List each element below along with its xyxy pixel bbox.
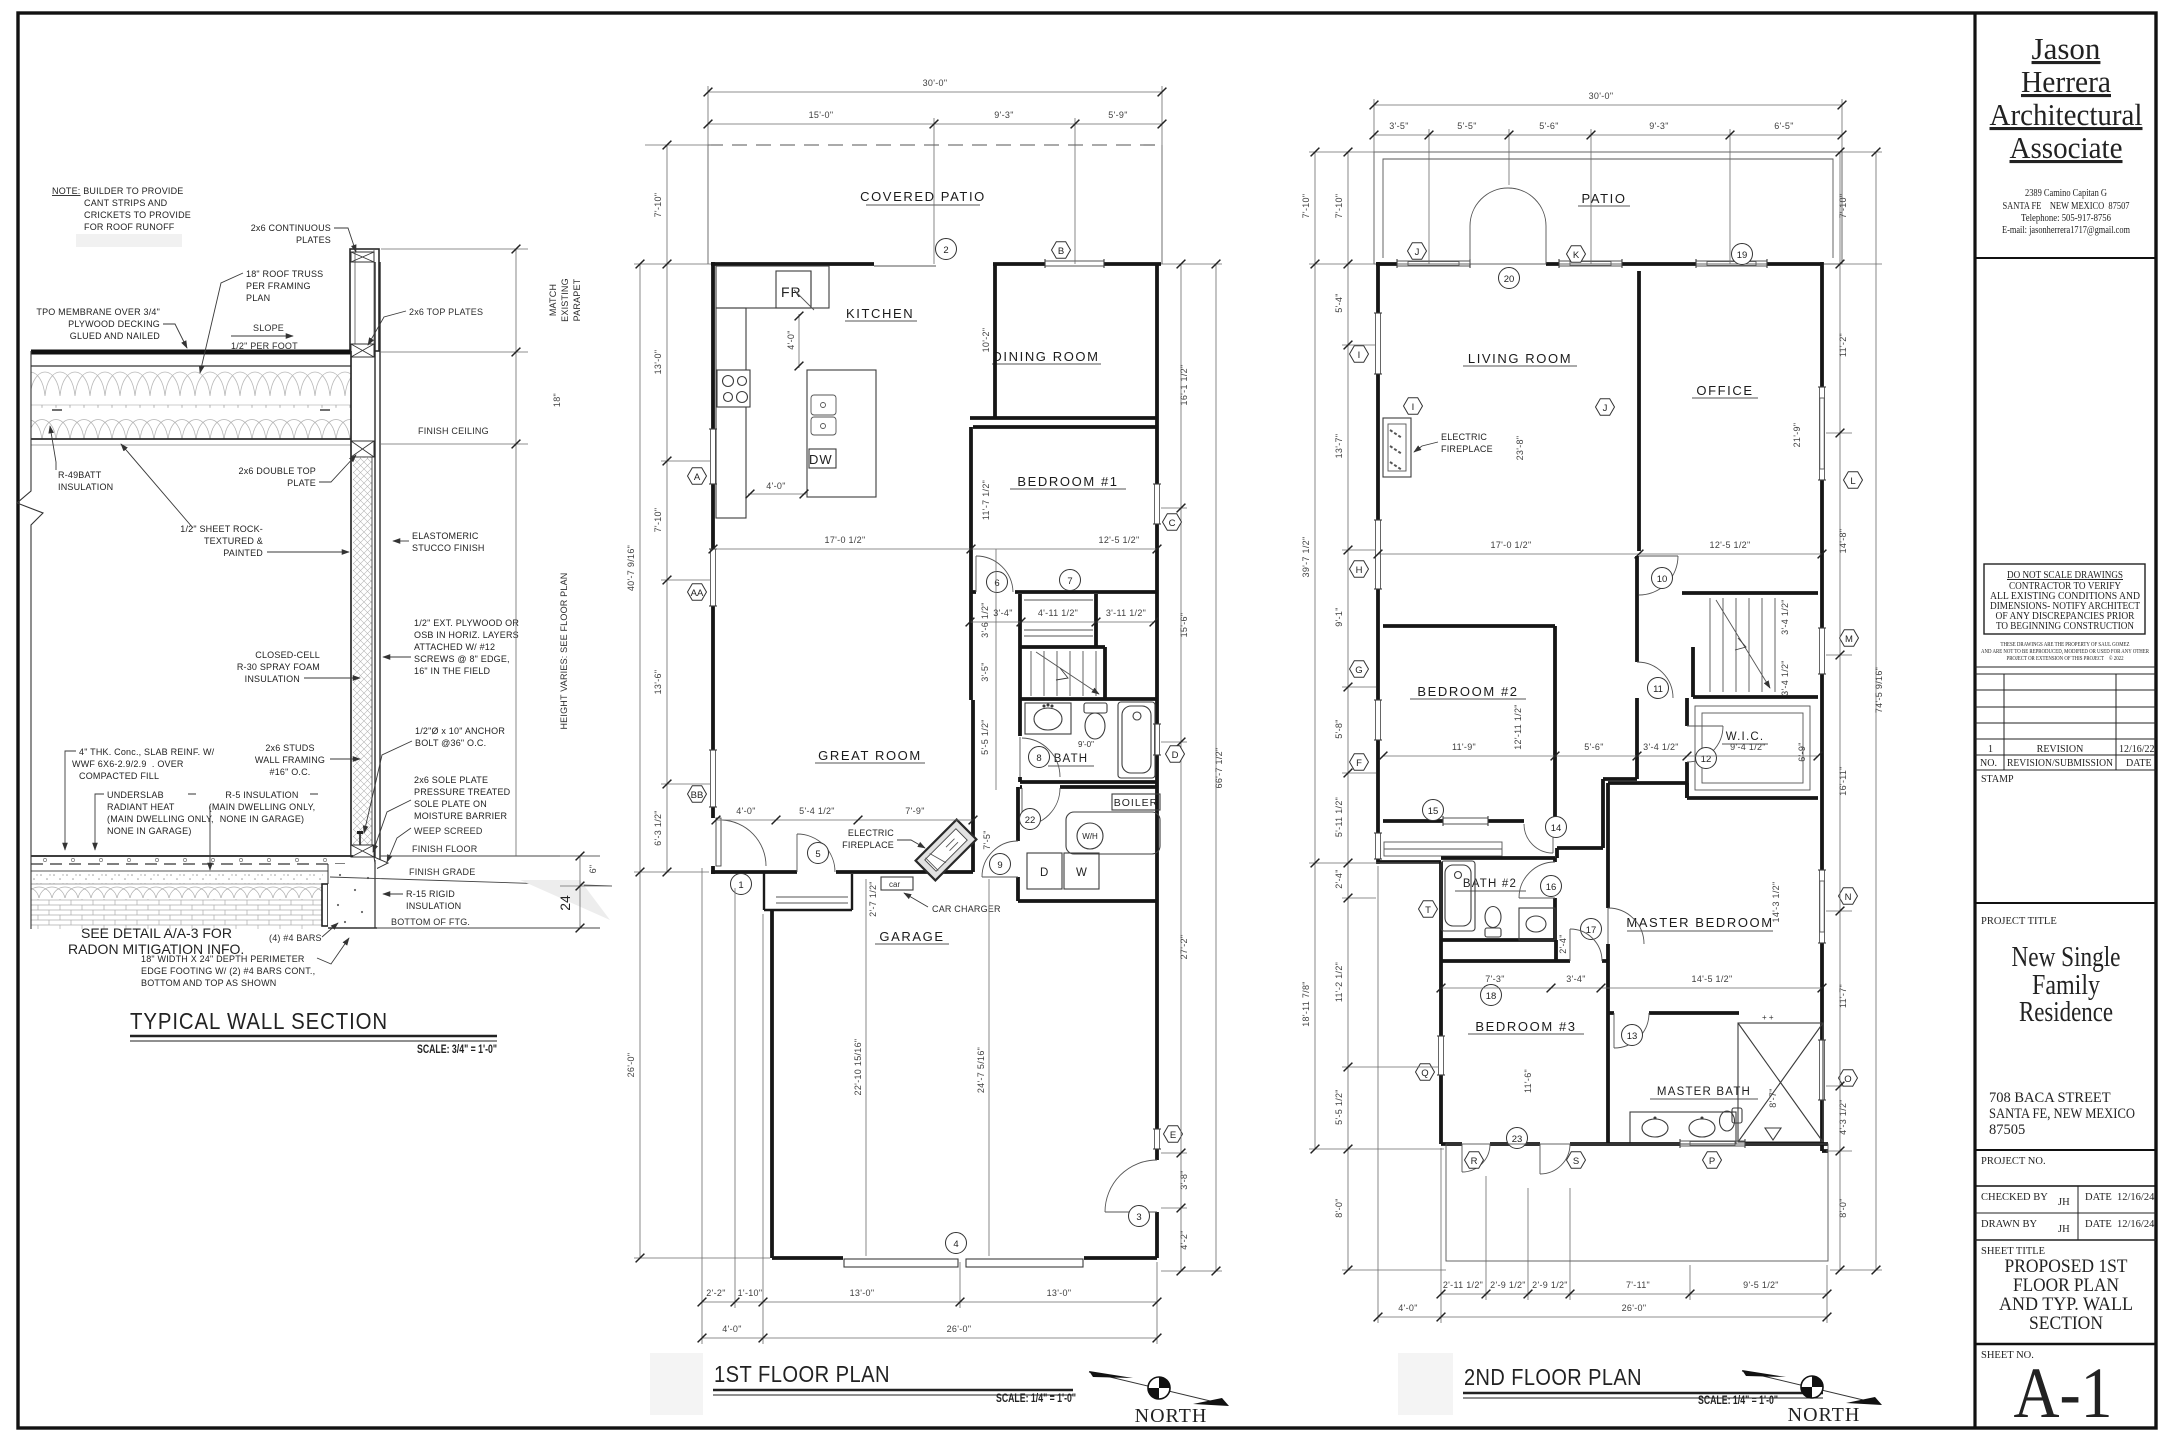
svg-text:7'-10": 7'-10" — [653, 508, 663, 533]
svg-text:CANT STRIPS AND: CANT STRIPS AND — [84, 198, 168, 208]
svg-text:E-mail: jasonherrera1717@gmail: E-mail: jasonherrera1717@gmail.com — [2002, 225, 2130, 236]
svg-text:20: 20 — [1504, 274, 1515, 285]
svg-text:14'-5 1/2": 14'-5 1/2" — [1692, 974, 1733, 984]
svg-text:3'-4 1/2": 3'-4 1/2" — [1780, 599, 1790, 635]
svg-text:CHECKED BY: CHECKED BY — [1981, 1192, 2048, 1203]
svg-text:THESE DRAWINGS ARE THE PROPERT: THESE DRAWINGS ARE THE PROPERTY OF SAUL … — [2001, 642, 2130, 648]
svg-text:2x6 CONTINUOUS: 2x6 CONTINUOUS — [251, 223, 331, 233]
svg-text:7'-5": 7'-5" — [982, 830, 992, 849]
svg-text:5'-5 1/2": 5'-5 1/2" — [980, 719, 990, 755]
svg-text:DW: DW — [809, 452, 833, 467]
svg-text:J: J — [1603, 403, 1608, 414]
svg-text:R-49BATT: R-49BATT — [58, 470, 102, 480]
svg-text:DO NOT SCALE DRAWINGS: DO NOT SCALE DRAWINGS — [2007, 570, 2123, 581]
svg-text:2'-4": 2'-4" — [1558, 934, 1568, 953]
svg-text:4'-0": 4'-0" — [722, 1324, 741, 1334]
svg-text:CLOSED-CELL: CLOSED-CELL — [255, 650, 320, 660]
svg-text:CAR CHARGER: CAR CHARGER — [932, 904, 1001, 914]
svg-text:N: N — [1845, 892, 1852, 903]
svg-text:6: 6 — [994, 578, 999, 589]
svg-text:AA: AA — [691, 588, 704, 599]
svg-text:INSULATION: INSULATION — [245, 674, 300, 684]
svg-text:3'-8": 3'-8" — [1179, 1170, 1189, 1189]
svg-text:3'-6 1/2": 3'-6 1/2" — [980, 602, 990, 638]
svg-text:8'-7": 8'-7" — [1768, 1088, 1778, 1107]
svg-text:11'-7 1/2": 11'-7 1/2" — [981, 480, 991, 520]
svg-text:8'-0": 8'-0" — [1838, 1198, 1848, 1217]
svg-text:PROJECT TITLE: PROJECT TITLE — [1981, 916, 2057, 927]
svg-text:11'-9": 11'-9" — [1452, 742, 1476, 752]
svg-text:WEEP SCREED: WEEP SCREED — [414, 826, 483, 836]
svg-text:NONE IN GARAGE): NONE IN GARAGE) — [107, 826, 192, 836]
svg-text:24: 24 — [557, 895, 573, 911]
svg-text:39'-7 1/2": 39'-7 1/2" — [1301, 537, 1311, 578]
svg-text:NONE IN GARAGE): NONE IN GARAGE) — [220, 814, 305, 824]
svg-text:LIVING ROOM: LIVING ROOM — [1468, 351, 1572, 366]
svg-text:B: B — [1058, 246, 1064, 257]
svg-text:13'-7": 13'-7" — [1334, 434, 1344, 459]
svg-text:2'-11 1/2": 2'-11 1/2" — [1443, 1280, 1483, 1290]
svg-text:UNDERSLAB: UNDERSLAB — [107, 790, 164, 800]
svg-text:STAMP: STAMP — [1981, 774, 2014, 785]
svg-text:DINING ROOM: DINING ROOM — [992, 349, 1099, 364]
svg-text:PLAN: PLAN — [246, 293, 270, 303]
svg-text:26'-0": 26'-0" — [626, 1053, 636, 1078]
svg-text:T: T — [1425, 905, 1431, 916]
svg-text:TEXTURED &: TEXTURED & — [204, 536, 263, 546]
svg-text:18" ROOF TRUSS: 18" ROOF TRUSS — [246, 269, 323, 279]
svg-text:CRICKETS TO PROVIDE: CRICKETS TO PROVIDE — [84, 210, 191, 220]
svg-text:BOTTOM OF FTG.: BOTTOM OF FTG. — [391, 917, 470, 927]
svg-text:2x6 DOUBLE TOP: 2x6 DOUBLE TOP — [239, 466, 317, 476]
svg-text:BOLT @36" O.C.: BOLT @36" O.C. — [415, 738, 486, 748]
svg-text:5'-6": 5'-6" — [1539, 121, 1558, 131]
svg-text:W/H: W/H — [1082, 832, 1098, 841]
svg-text:BEDROOM #2: BEDROOM #2 — [1417, 684, 1518, 699]
svg-text:R: R — [1471, 1156, 1478, 1167]
svg-text:New Single: New Single — [2012, 942, 2121, 973]
svg-text:2x6 STUDS: 2x6 STUDS — [265, 743, 314, 753]
svg-text:27'-2": 27'-2" — [1179, 935, 1189, 960]
svg-text:INSULATION: INSULATION — [58, 482, 113, 492]
svg-text:1'-10": 1'-10" — [738, 1288, 763, 1298]
svg-text:1: 1 — [738, 880, 743, 891]
svg-text:NO.: NO. — [1980, 758, 1997, 769]
svg-text:19: 19 — [1737, 250, 1748, 261]
svg-text:PROJECT NO.: PROJECT NO. — [1981, 1156, 2046, 1167]
svg-text:DATE: DATE — [2126, 758, 2152, 769]
svg-text:4" THK. Conc., SLAB REINF. W/: 4" THK. Conc., SLAB REINF. W/ — [79, 747, 215, 757]
svg-text:SCALE: 1/4" = 1'-0": SCALE: 1/4" = 1'-0" — [1698, 1395, 1778, 1407]
svg-text:6'-5": 6'-5" — [1774, 121, 1793, 131]
svg-text:2'-2": 2'-2" — [706, 1288, 725, 1298]
svg-text:PRESSURE TREATED: PRESSURE TREATED — [414, 787, 511, 797]
svg-text:(MAIN DWELLING ONLY,: (MAIN DWELLING ONLY, — [209, 802, 316, 812]
svg-text:car: car — [889, 880, 900, 889]
svg-text:3'-4": 3'-4" — [1566, 974, 1585, 984]
svg-text:I: I — [1412, 402, 1415, 413]
svg-text:I: I — [1358, 350, 1361, 361]
svg-text:14'-3 1/2": 14'-3 1/2" — [1771, 882, 1781, 923]
svg-text:PARAPET: PARAPET — [572, 278, 582, 321]
svg-text:NORTH: NORTH — [1788, 1404, 1861, 1426]
svg-text:DRAWN BY: DRAWN BY — [1981, 1219, 2037, 1230]
svg-text:RADIANT HEAT: RADIANT HEAT — [107, 802, 175, 812]
svg-text:SANTA FE, NEW MEXICO: SANTA FE, NEW MEXICO — [1989, 1106, 2135, 1122]
svg-text:7: 7 — [1067, 576, 1072, 587]
svg-text:S: S — [1573, 1156, 1579, 1167]
svg-text:NOTE: BUILDER TO PROVIDE: NOTE: BUILDER TO PROVIDE — [52, 186, 184, 196]
svg-text:5'-5": 5'-5" — [1457, 121, 1476, 131]
svg-text:1ST FLOOR PLAN: 1ST FLOOR PLAN — [714, 1361, 890, 1387]
svg-text:18: 18 — [1486, 991, 1497, 1002]
svg-text:8'-0": 8'-0" — [1334, 1198, 1344, 1217]
svg-text:ELECTRIC: ELECTRIC — [1441, 432, 1487, 442]
svg-text:18'-11 7/8": 18'-11 7/8" — [1301, 981, 1311, 1027]
svg-text:Q: Q — [1421, 1068, 1428, 1079]
svg-text:SCREWS @ 8" EDGE,: SCREWS @ 8" EDGE, — [414, 654, 510, 664]
svg-text:E: E — [1170, 1130, 1176, 1141]
svg-text:PLATES: PLATES — [296, 235, 331, 245]
svg-text:PAINTED: PAINTED — [223, 548, 263, 558]
svg-text:PER FRAMING: PER FRAMING — [246, 281, 311, 291]
svg-text:D: D — [1172, 750, 1179, 761]
svg-text:4'-2": 4'-2" — [1179, 1230, 1189, 1249]
svg-text:Architectural: Architectural — [1990, 97, 2143, 132]
svg-text:MASTER BATH: MASTER BATH — [1657, 1086, 1751, 1098]
svg-text:5'-8": 5'-8" — [1334, 719, 1344, 738]
svg-text:3'-4 1/2": 3'-4 1/2" — [1780, 660, 1790, 696]
svg-text:Jason: Jason — [2032, 31, 2101, 66]
svg-text:FINISH CEILING: FINISH CEILING — [418, 426, 489, 436]
svg-text:REVISION: REVISION — [2037, 744, 2084, 755]
svg-text:M: M — [1845, 634, 1853, 645]
svg-text:9'-1": 9'-1" — [1334, 607, 1344, 626]
svg-text:3'-5": 3'-5" — [1389, 121, 1408, 131]
svg-text:2'-9 1/2": 2'-9 1/2" — [1532, 1280, 1568, 1290]
svg-text:16'-11": 16'-11" — [1838, 766, 1848, 795]
svg-text:5'-4": 5'-4" — [1334, 293, 1344, 312]
svg-text:GARAGE: GARAGE — [879, 929, 944, 944]
svg-text:GREAT ROOM: GREAT ROOM — [818, 748, 922, 763]
svg-text:66'-7 1/2": 66'-7 1/2" — [1214, 748, 1224, 789]
svg-text:SCALE: 3/4" = 1'-0": SCALE: 3/4" = 1'-0" — [417, 1044, 497, 1056]
svg-text:2389 Camino Capitan G: 2389 Camino Capitan G — [2025, 188, 2107, 199]
svg-text:4'-0": 4'-0" — [1398, 1303, 1417, 1313]
svg-text:SANTA FE NEW MEXICO 87507: SANTA FE NEW MEXICO 87507 — [2003, 201, 2130, 212]
svg-text:BATH: BATH — [1054, 753, 1089, 765]
svg-text:5'-11 1/2": 5'-11 1/2" — [1334, 797, 1344, 837]
svg-text:PLYWOOD DECKING: PLYWOOD DECKING — [68, 319, 160, 329]
svg-text:Herrera: Herrera — [2021, 64, 2111, 99]
svg-text:13'-0": 13'-0" — [850, 1288, 875, 1298]
svg-text:15'-0": 15'-0" — [809, 110, 834, 120]
svg-text:PATIO: PATIO — [1581, 191, 1626, 206]
svg-text:2'-7 1/2": 2'-7 1/2" — [868, 881, 878, 917]
svg-text:MOISTURE BARRIER: MOISTURE BARRIER — [414, 811, 508, 821]
svg-text:MASTER BEDROOM: MASTER BEDROOM — [1626, 915, 1773, 930]
svg-text:12/16/24: 12/16/24 — [2117, 1219, 2155, 1230]
svg-text:30'-0": 30'-0" — [923, 78, 948, 88]
svg-text:9'-3": 9'-3" — [994, 110, 1013, 120]
svg-text:22: 22 — [1025, 815, 1036, 826]
svg-text:5'-6": 5'-6" — [1584, 742, 1603, 752]
svg-text:FR: FR — [781, 284, 802, 300]
svg-text:AND TYP. WALL: AND TYP. WALL — [1999, 1295, 2133, 1315]
svg-text:3: 3 — [1136, 1212, 1141, 1223]
svg-text:#16" O.C.: #16" O.C. — [269, 767, 310, 777]
svg-text:BEDROOM #3: BEDROOM #3 — [1475, 1019, 1576, 1034]
svg-text:SLOPE: SLOPE — [253, 323, 284, 333]
svg-text:4'-3 1/2": 4'-3 1/2" — [1838, 1099, 1848, 1135]
svg-text:MATCH: MATCH — [548, 284, 558, 316]
svg-text:8: 8 — [1036, 753, 1041, 764]
svg-text:F: F — [1356, 758, 1362, 769]
svg-text:12'-5 1/2": 12'-5 1/2" — [1710, 540, 1751, 550]
svg-text:16" IN THE FIELD: 16" IN THE FIELD — [414, 666, 491, 676]
svg-text:FIREPLACE: FIREPLACE — [1441, 444, 1493, 454]
svg-text:6'-3 1/2": 6'-3 1/2" — [653, 810, 663, 846]
svg-text:HEIGHT VARIES: SEE FLOOR PLAN: HEIGHT VARIES: SEE FLOOR PLAN — [559, 572, 569, 729]
svg-text:7'-10": 7'-10" — [1301, 194, 1311, 219]
svg-text:4: 4 — [953, 1239, 958, 1250]
svg-text:R-5 INSULATION: R-5 INSULATION — [225, 790, 298, 800]
svg-text:13'-6": 13'-6" — [653, 670, 663, 695]
svg-text:7'-11": 7'-11" — [1626, 1280, 1650, 1290]
svg-text:BOILER: BOILER — [1114, 797, 1159, 809]
svg-text:5'-9": 5'-9" — [1108, 110, 1127, 120]
svg-text:6": 6" — [588, 865, 598, 874]
svg-text:K: K — [1573, 250, 1580, 261]
svg-text:+ +: + + — [1762, 1013, 1774, 1022]
svg-text:1/2" PER FOOT: 1/2" PER FOOT — [231, 341, 298, 351]
svg-text:9'-0": 9'-0" — [1078, 740, 1094, 749]
svg-text:14: 14 — [1551, 823, 1562, 834]
svg-text:(4) #4 BARS: (4) #4 BARS — [269, 933, 322, 943]
svg-text:STUCCO FINISH: STUCCO FINISH — [412, 543, 485, 553]
svg-text:16'-1 1/2": 16'-1 1/2" — [1179, 365, 1189, 406]
svg-text:Telephone: 505-917-8756: Telephone: 505-917-8756 — [2021, 213, 2111, 224]
svg-text:2x6 TOP PLATES: 2x6 TOP PLATES — [409, 307, 483, 317]
svg-text:SCALE: 1/4" = 1'-0": SCALE: 1/4" = 1'-0" — [996, 1393, 1076, 1405]
svg-text:BEDROOM #1: BEDROOM #1 — [1017, 474, 1118, 489]
svg-text:18": 18" — [552, 393, 562, 407]
svg-text:W: W — [1076, 867, 1087, 879]
svg-text:TPO MEMBRANE OVER 3/4": TPO MEMBRANE OVER 3/4" — [36, 307, 160, 317]
svg-text:9: 9 — [997, 860, 1002, 871]
svg-text:DATE: DATE — [2085, 1219, 2112, 1230]
svg-text:13'-0": 13'-0" — [653, 350, 663, 375]
svg-text:13'-0": 13'-0" — [1047, 1288, 1072, 1298]
svg-text:TO BEGINNING CONSTRUCTION: TO BEGINNING CONSTRUCTION — [1996, 621, 2134, 632]
svg-text:C: C — [1169, 518, 1176, 529]
svg-text:21'-9": 21'-9" — [1792, 423, 1802, 448]
svg-text:9'-5 1/2": 9'-5 1/2" — [1743, 1280, 1779, 1290]
svg-text:2: 2 — [943, 245, 948, 256]
svg-text:11'-6": 11'-6" — [1523, 1069, 1533, 1093]
svg-text:9'-3": 9'-3" — [1649, 121, 1668, 131]
svg-text:P: P — [1709, 1156, 1715, 1167]
svg-text:12/16/24: 12/16/24 — [2117, 1192, 2155, 1203]
svg-text:FOR ROOF RUNOFF: FOR ROOF RUNOFF — [84, 222, 175, 232]
svg-text:26'-0": 26'-0" — [1622, 1303, 1647, 1313]
svg-text:ATTACHED W/ #12: ATTACHED W/ #12 — [414, 642, 495, 652]
svg-text:4'-0": 4'-0" — [766, 481, 785, 491]
svg-text:PROJECT OR EXTENSION OF THIS P: PROJECT OR EXTENSION OF THIS PROJECT © 2… — [2007, 655, 2124, 662]
svg-text:KITCHEN: KITCHEN — [846, 306, 914, 321]
svg-text:30'-0": 30'-0" — [1589, 91, 1614, 101]
svg-text:4'-0": 4'-0" — [786, 330, 796, 349]
svg-text:1: 1 — [1988, 744, 1993, 755]
svg-text:PLATE: PLATE — [287, 478, 316, 488]
svg-text:OFFICE: OFFICE — [1696, 383, 1753, 398]
svg-text:SOLE PLATE ON: SOLE PLATE ON — [414, 799, 487, 809]
svg-text:R-30 SPRAY FOAM: R-30 SPRAY FOAM — [237, 662, 320, 672]
svg-text:G: G — [1355, 665, 1362, 676]
svg-text:74'-5 9/16": 74'-5 9/16" — [1874, 667, 1884, 713]
svg-text:PROPOSED 1ST: PROPOSED 1ST — [2005, 1257, 2128, 1277]
svg-text:COVERED PATIO: COVERED PATIO — [860, 189, 986, 204]
svg-text:26'-0": 26'-0" — [947, 1324, 972, 1334]
svg-text:AND ARE NOT TO BE REPRODUCED,: AND ARE NOT TO BE REPRODUCED, MODIFIED O… — [1981, 649, 2149, 655]
svg-text:4'-11 1/2": 4'-11 1/2" — [1038, 608, 1078, 618]
svg-text:4'-0": 4'-0" — [736, 806, 755, 816]
svg-text:22'-10 15/16": 22'-10 15/16" — [853, 1039, 863, 1096]
svg-text:1/2" SHEET ROCK-: 1/2" SHEET ROCK- — [180, 524, 263, 534]
svg-text:REVISION/SUBMISSION: REVISION/SUBMISSION — [2007, 758, 2113, 769]
svg-text:D: D — [1040, 867, 1048, 879]
svg-text:NORTH: NORTH — [1135, 1405, 1208, 1427]
svg-text:10'-2": 10'-2" — [981, 328, 991, 353]
svg-text:11'-2 1/2": 11'-2 1/2" — [1334, 962, 1344, 1002]
svg-text:FINISH GRADE: FINISH GRADE — [409, 867, 475, 877]
svg-text:WALL FRAMING: WALL FRAMING — [255, 755, 325, 765]
svg-text:WWF 6X6-2.9/2.9 . OVER: WWF 6X6-2.9/2.9 . OVER — [72, 759, 184, 769]
svg-text:SECTION: SECTION — [2029, 1314, 2103, 1334]
svg-text:ELECTRIC: ELECTRIC — [848, 828, 894, 838]
svg-text:9'-4 1/2": 9'-4 1/2" — [1730, 742, 1766, 752]
svg-text:DATE: DATE — [2085, 1192, 2112, 1203]
svg-text:7'-10": 7'-10" — [653, 193, 663, 218]
svg-text:SEE DETAIL A/A-3 FOR: SEE DETAIL A/A-3 FOR — [81, 925, 232, 941]
svg-text:EDGE FOOTING W/ (2) #4 BARS CO: EDGE FOOTING W/ (2) #4 BARS CONT., — [141, 966, 315, 976]
svg-text:17'-0 1/2": 17'-0 1/2" — [825, 535, 866, 545]
svg-text:87505: 87505 — [1989, 1122, 2025, 1138]
svg-text:24'-7 5/16": 24'-7 5/16" — [976, 1047, 986, 1093]
svg-text:1/2" EXT. PLYWOOD OR: 1/2" EXT. PLYWOOD OR — [414, 618, 519, 628]
svg-text:OSB IN HORIZ. LAYERS: OSB IN HORIZ. LAYERS — [414, 630, 519, 640]
svg-text:6'-9": 6'-9" — [1797, 742, 1807, 761]
svg-text:GLUED AND NAILED: GLUED AND NAILED — [70, 331, 161, 341]
svg-text:FLOOR PLAN: FLOOR PLAN — [2013, 1276, 2119, 1296]
svg-text:3'-11 1/2": 3'-11 1/2" — [1106, 608, 1146, 618]
svg-text:10: 10 — [1657, 574, 1668, 585]
svg-text:SHEET TITLE: SHEET TITLE — [1981, 1246, 2045, 1257]
svg-text:FIREPLACE: FIREPLACE — [842, 840, 894, 850]
svg-text:O: O — [1844, 1074, 1851, 1085]
svg-text:Residence: Residence — [2019, 997, 2113, 1028]
svg-text:5'-5 1/2": 5'-5 1/2" — [1334, 1089, 1344, 1125]
svg-text:2'-9 1/2": 2'-9 1/2" — [1490, 1280, 1526, 1290]
svg-text:12'-5 1/2": 12'-5 1/2" — [1099, 535, 1140, 545]
svg-text:1/2"Ø x 10" ANCHOR: 1/2"Ø x 10" ANCHOR — [415, 726, 505, 736]
svg-text:11'-7": 11'-7" — [1838, 984, 1848, 1008]
svg-text:11'-2": 11'-2" — [1838, 333, 1848, 357]
svg-text:A-1: A-1 — [2014, 1353, 2113, 1433]
svg-text:(MAIN DWELLING ONLY,: (MAIN DWELLING ONLY, — [107, 814, 214, 824]
svg-text:J: J — [1415, 247, 1420, 258]
svg-text:Associate: Associate — [2010, 130, 2123, 165]
svg-text:TYPICAL WALL SECTION: TYPICAL WALL SECTION — [130, 1008, 388, 1034]
svg-text:JH: JH — [2058, 1224, 2070, 1235]
svg-text:ELASTOMERIC: ELASTOMERIC — [412, 531, 479, 541]
svg-text:7'-3": 7'-3" — [1485, 974, 1504, 984]
svg-text:H: H — [1356, 565, 1363, 576]
svg-text:708 BACA STREET: 708 BACA STREET — [1989, 1090, 2111, 1106]
svg-text:13: 13 — [1627, 1031, 1638, 1042]
svg-text:16: 16 — [1546, 882, 1557, 893]
svg-text:A: A — [694, 472, 701, 483]
svg-text:12'-11 1/2": 12'-11 1/2" — [1513, 704, 1523, 750]
svg-text:12/16/22: 12/16/22 — [2119, 744, 2155, 755]
svg-text:7'-9": 7'-9" — [905, 806, 924, 816]
svg-text:EXISTING: EXISTING — [560, 278, 570, 322]
svg-text:14'-8": 14'-8" — [1838, 529, 1848, 554]
svg-text:5: 5 — [815, 849, 820, 860]
svg-text:COMPACTED FILL: COMPACTED FILL — [79, 771, 159, 781]
svg-text:2ND FLOOR PLAN: 2ND FLOOR PLAN — [1464, 1364, 1642, 1390]
svg-text:11: 11 — [1653, 684, 1663, 695]
svg-text:3'-4 1/2": 3'-4 1/2" — [1643, 742, 1679, 752]
svg-text:2x6 SOLE PLATE: 2x6 SOLE PLATE — [414, 775, 488, 785]
svg-text:3'-5": 3'-5" — [980, 662, 990, 681]
svg-text:23'-8": 23'-8" — [1515, 436, 1525, 461]
svg-text:5'-4 1/2": 5'-4 1/2" — [799, 806, 835, 816]
svg-text:BOTTOM AND TOP AS SHOWN: BOTTOM AND TOP AS SHOWN — [141, 978, 276, 988]
svg-text:23: 23 — [1512, 1134, 1523, 1145]
svg-text:40'-7 9/16": 40'-7 9/16" — [626, 545, 636, 591]
svg-text:15: 15 — [1428, 806, 1439, 817]
svg-text:BB: BB — [691, 790, 704, 801]
svg-text:R-15 RIGID: R-15 RIGID — [406, 889, 455, 899]
svg-text:3'-4": 3'-4" — [993, 608, 1012, 618]
svg-text:INSULATION: INSULATION — [406, 901, 461, 911]
svg-text:15'-6": 15'-6" — [1179, 613, 1189, 638]
svg-text:7'-10": 7'-10" — [1334, 194, 1344, 219]
svg-text:7'-10": 7'-10" — [1838, 194, 1848, 219]
svg-text:17'-0 1/2": 17'-0 1/2" — [1491, 540, 1532, 550]
svg-text:JH: JH — [2058, 1197, 2070, 1208]
svg-text:2'-4": 2'-4" — [1334, 869, 1344, 888]
svg-text:18" WIDTH X 24" DEPTH PERIMETE: 18" WIDTH X 24" DEPTH PERIMETER — [141, 954, 305, 964]
svg-text:FINISH FLOOR: FINISH FLOOR — [412, 844, 478, 854]
svg-text:L: L — [1850, 476, 1855, 487]
